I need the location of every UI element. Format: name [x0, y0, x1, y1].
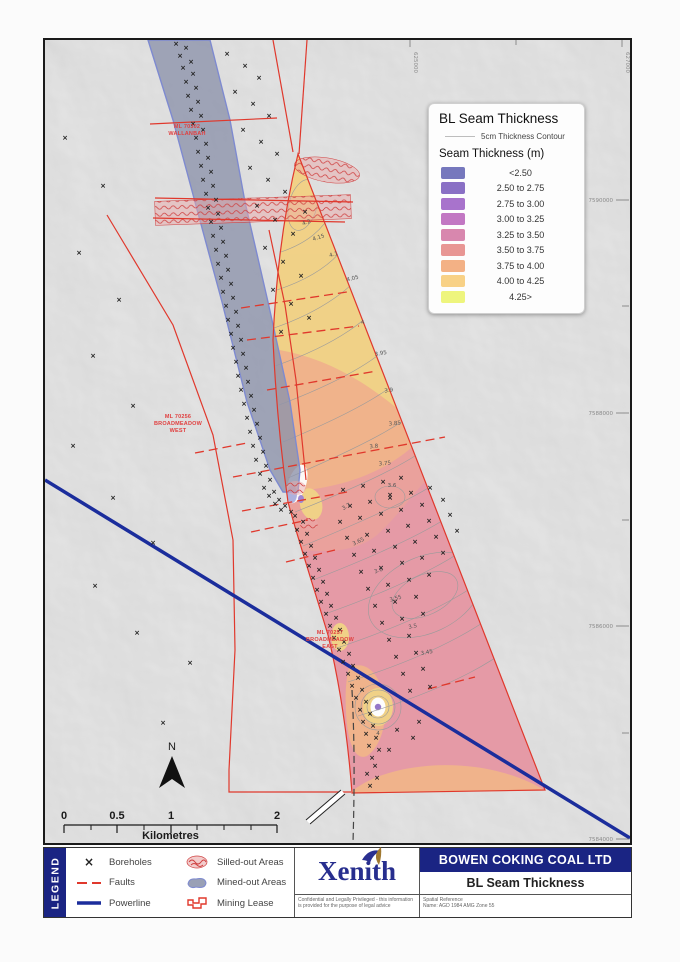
borehole-marker: ×	[193, 84, 199, 92]
borehole-marker: ×	[235, 372, 241, 380]
borehole-marker: ×	[420, 610, 426, 618]
borehole-marker: ×	[230, 344, 236, 352]
borehole-marker: ×	[240, 350, 246, 358]
borehole-marker: ×	[371, 547, 377, 555]
map-frame: ××××××××××××××××××××××××××××××××××××××××…	[43, 38, 632, 845]
borehole-marker: ×	[134, 629, 140, 637]
borehole-marker: ×	[90, 352, 96, 360]
borehole-marker: ×	[294, 526, 300, 534]
faults-icon	[76, 878, 102, 888]
legend-item-label: Mining Lease	[217, 898, 274, 909]
borehole-marker: ×	[302, 550, 308, 558]
borehole-marker: ×	[248, 392, 254, 400]
borehole-marker: ×	[213, 246, 219, 254]
svg-text:×: ×	[84, 855, 94, 869]
borehole-marker: ×	[412, 538, 418, 546]
label-broadmeadow-east: ML 70257 BROADMEADOW EAST	[282, 630, 378, 651]
borehole-marker: ×	[357, 514, 363, 522]
borehole-marker: ×	[223, 252, 229, 260]
xenith-logo-cell: Xenith	[294, 848, 419, 895]
seam-class-swatch	[441, 167, 465, 179]
borehole-marker: ×	[272, 500, 278, 508]
borehole-marker: ×	[364, 770, 370, 778]
legend-item-boreholes: ×Boreholes	[76, 853, 184, 871]
borehole-marker: ×	[387, 491, 393, 499]
borehole-marker: ×	[150, 539, 156, 547]
borehole-marker: ×	[355, 674, 361, 682]
legend-item-label: Powerline	[109, 898, 151, 909]
borehole-marker: ×	[247, 428, 253, 436]
borehole-marker: ×	[385, 581, 391, 589]
seam-class-row: 2.50 to 2.75	[437, 181, 576, 197]
spatial-reference: Spatial Reference Name: AGD 1984 AMG Zon…	[419, 895, 631, 917]
borehole-marker: ×	[392, 543, 398, 551]
borehole-marker: ×	[304, 530, 310, 538]
borehole-marker: ×	[215, 260, 221, 268]
borehole-marker: ×	[258, 138, 264, 146]
northing-label: 7584000	[589, 837, 614, 843]
borehole-marker: ×	[254, 202, 260, 210]
legend-item-label: Boreholes	[109, 857, 152, 868]
borehole-marker: ×	[220, 238, 226, 246]
borehole-marker: ×	[345, 670, 351, 678]
borehole-marker: ×	[372, 762, 378, 770]
borehole-marker: ×	[240, 126, 246, 134]
borehole-marker: ×	[318, 598, 324, 606]
borehole-marker: ×	[265, 176, 271, 184]
borehole-marker: ×	[364, 531, 370, 539]
contour-legend-label: 5cm Thickness Contour	[481, 132, 565, 141]
legend-banner-label: LEGEND	[49, 856, 61, 909]
borehole-marker: ×	[399, 559, 405, 567]
seam-class-swatch	[441, 213, 465, 225]
seam-class-list: <2.502.50 to 2.752.75 to 3.003.00 to 3.2…	[437, 165, 576, 305]
borehole-marker: ×	[379, 619, 385, 627]
borehole-marker: ×	[110, 494, 116, 502]
borehole-marker: ×	[314, 586, 320, 594]
borehole-marker: ×	[386, 636, 392, 644]
borehole-marker: ×	[218, 224, 224, 232]
seam-class-label: 3.00 to 3.25	[465, 214, 576, 224]
borehole-marker: ×	[282, 188, 288, 196]
borehole-marker: ×	[426, 571, 432, 579]
contour-label: 3.6	[388, 483, 397, 489]
borehole-marker: ×	[416, 718, 422, 726]
borehole-marker: ×	[367, 498, 373, 506]
borehole-marker: ×	[250, 442, 256, 450]
borehole-marker: ×	[433, 533, 439, 541]
borehole-marker: ×	[274, 150, 280, 158]
contour-label: 3.8	[369, 444, 379, 451]
borehole-marker: ×	[353, 694, 359, 702]
seam-class-swatch	[441, 182, 465, 194]
legend-items: ×BoreholesFaultsPowerline Silled-out Are…	[66, 848, 294, 917]
borehole-marker: ×	[208, 218, 214, 226]
legend-item-faults: Faults	[76, 874, 184, 892]
xenith-logo: Xenith	[318, 858, 396, 885]
borehole-marker: ×	[238, 336, 244, 344]
seam-class-swatch	[441, 244, 465, 256]
seam-class-row: 3.00 to 3.25	[437, 212, 576, 228]
borehole-marker: ×	[378, 510, 384, 518]
borehole-marker: ×	[340, 486, 346, 494]
seam-class-row: 3.25 to 3.50	[437, 227, 576, 243]
borehole-marker: ×	[92, 582, 98, 590]
borehole-marker: ×	[300, 518, 306, 526]
seam-class-swatch	[441, 260, 465, 272]
borehole-marker: ×	[292, 512, 298, 520]
borehole-marker: ×	[290, 230, 296, 238]
seam-class-row: 4.25>	[437, 289, 576, 305]
borehole-marker: ×	[394, 726, 400, 734]
borehole-marker: ×	[62, 134, 68, 142]
borehole-marker: ×	[70, 442, 76, 450]
borehole-marker: ×	[365, 585, 371, 593]
borehole-marker: ×	[400, 670, 406, 678]
borehole-marker: ×	[233, 358, 239, 366]
borehole-marker: ×	[245, 378, 251, 386]
northing-label: 7588000	[589, 411, 614, 417]
seam-class-label: 3.50 to 3.75	[465, 245, 576, 255]
borehole-marker: ×	[405, 522, 411, 530]
borehole-marker: ×	[366, 742, 372, 750]
scale-tick-label: 0	[61, 810, 67, 822]
borehole-marker: ×	[195, 98, 201, 106]
borehole-marker: ×	[260, 448, 266, 456]
borehole-marker: ×	[177, 52, 183, 60]
borehole-marker: ×	[298, 538, 304, 546]
borehole-marker: ×	[306, 314, 312, 322]
borehole-marker: ×	[308, 542, 314, 550]
borehole-marker: ×	[251, 406, 257, 414]
borehole-marker: ×	[385, 527, 391, 535]
borehole-marker: ×	[210, 232, 216, 240]
xenith-swirl-icon	[360, 846, 384, 868]
easting-label: 627000	[624, 52, 630, 73]
borehole-marker: ×	[376, 746, 382, 754]
borehole-marker: ×	[250, 100, 256, 108]
scale-tick-label: 1	[168, 810, 174, 822]
borehole-marker: ×	[223, 302, 229, 310]
borehole-marker: ×	[238, 386, 244, 394]
borehole-marker: ×	[225, 316, 231, 324]
borehole-marker: ×	[350, 662, 356, 670]
borehole-marker: ×	[280, 258, 286, 266]
borehole-marker: ×	[228, 280, 234, 288]
borehole-marker: ×	[349, 682, 355, 690]
borehole-marker: ×	[367, 710, 373, 718]
borehole-marker: ×	[262, 244, 268, 252]
borehole-marker: ×	[213, 196, 219, 204]
borehole-marker: ×	[242, 62, 248, 70]
legend-item-label: Mined-out Areas	[217, 877, 286, 888]
borehole-marker: ×	[399, 615, 405, 623]
borehole-marker: ×	[218, 274, 224, 282]
borehole-marker: ×	[306, 562, 312, 570]
borehole-marker: ×	[198, 112, 204, 120]
borehole-marker: ×	[208, 168, 214, 176]
legend-item-label: Faults	[109, 877, 135, 888]
seam-class-swatch	[441, 275, 465, 287]
borehole-marker: ×	[393, 653, 399, 661]
borehole-marker: ×	[183, 44, 189, 52]
borehole-marker: ×	[413, 593, 419, 601]
borehole-marker: ×	[406, 632, 412, 640]
borehole-marker: ×	[386, 746, 392, 754]
borehole-marker: ×	[278, 328, 284, 336]
scale-unit-label: Kilometres	[142, 830, 199, 842]
legend-box-title: BL Seam Thickness	[439, 111, 576, 126]
borehole-marker: ×	[210, 182, 216, 190]
seam-class-row: 3.75 to 4.00	[437, 258, 576, 274]
borehole-marker: ×	[271, 488, 277, 496]
mining-lease-icon	[185, 895, 209, 911]
borehole-marker: ×	[358, 568, 364, 576]
borehole-marker: ×	[363, 698, 369, 706]
borehole-marker: ×	[302, 208, 308, 216]
borehole-marker: ×	[419, 501, 425, 509]
borehole-marker: ×	[398, 474, 404, 482]
legend-item-mined-out-areas: Mined-out Areas	[184, 874, 292, 892]
seam-class-label: 4.00 to 4.25	[465, 276, 576, 286]
borehole-marker: ×	[266, 112, 272, 120]
northing-label: 7590000	[589, 198, 614, 204]
borehole-marker: ×	[370, 722, 376, 730]
borehole-marker: ×	[188, 58, 194, 66]
map-title-cell: BL Seam Thickness	[419, 872, 631, 895]
borehole-marker: ×	[247, 164, 253, 172]
north-label: N	[168, 741, 176, 753]
contour-label: 3.9	[384, 387, 394, 394]
borehole-marker: ×	[267, 476, 273, 484]
borehole-marker: ×	[413, 649, 419, 657]
borehole-marker: ×	[254, 420, 260, 428]
borehole-marker: ×	[76, 249, 82, 257]
borehole-marker: ×	[205, 204, 211, 212]
borehole-marker: ×	[232, 88, 238, 96]
borehole-marker: ×	[323, 610, 329, 618]
borehole-marker: ×	[190, 70, 196, 78]
mined-out-areas-icon	[185, 875, 209, 891]
borehole-marker: ×	[180, 64, 186, 72]
borehole-marker: ×	[173, 40, 179, 48]
legend-item-label: Silled-out Areas	[217, 857, 284, 868]
borehole-marker: ×	[333, 614, 339, 622]
borehole-marker: ×	[363, 730, 369, 738]
seam-class-row: 4.00 to 4.25	[437, 274, 576, 290]
borehole-marker: ×	[407, 687, 413, 695]
xenith-logo-text: Xenith	[318, 856, 396, 886]
borehole-marker: ×	[198, 162, 204, 170]
scale-tick-label: 0.5	[109, 810, 124, 822]
seam-thickness-heading: Seam Thickness (m)	[439, 148, 576, 160]
borehole-marker: ×	[316, 566, 322, 574]
scale-tick-label: 2	[274, 810, 280, 822]
borehole-marker: ×	[256, 74, 262, 82]
borehole-marker: ×	[257, 470, 263, 478]
borehole-marker: ×	[324, 590, 330, 598]
spatial-reference-name: Name: AGD 1984 AMG Zone 55	[423, 903, 628, 909]
borehole-marker: ×	[328, 602, 334, 610]
label-wallanbah: ML 70302 WALLANBAH	[139, 124, 235, 138]
borehole-marker: ×	[235, 322, 241, 330]
borehole-marker: ×	[346, 650, 352, 658]
seam-class-row: 3.50 to 3.75	[437, 243, 576, 259]
seam-class-label: 2.50 to 2.75	[465, 183, 576, 193]
borehole-marker: ×	[454, 527, 460, 535]
borehole-marker: ×	[360, 718, 366, 726]
legend-item-mining-lease: Mining Lease	[184, 894, 292, 912]
seam-class-swatch	[441, 198, 465, 210]
borehole-marker: ×	[224, 50, 230, 58]
borehole-marker: ×	[205, 154, 211, 162]
seam-class-label: 3.25 to 3.50	[465, 230, 576, 240]
borehole-marker: ×	[426, 517, 432, 525]
legend-item-powerline: Powerline	[76, 894, 184, 912]
borehole-marker: ×	[188, 106, 194, 114]
borehole-marker: ×	[372, 602, 378, 610]
borehole-marker: ×	[298, 272, 304, 280]
silled-out-areas-icon	[185, 854, 209, 870]
borehole-marker: ×	[278, 506, 284, 514]
borehole-marker: ×	[241, 400, 247, 408]
contour-line-sample	[445, 136, 475, 137]
company-banner: BOWEN COKING COAL LTD	[419, 848, 631, 872]
borehole-marker: ×	[160, 719, 166, 727]
borehole-marker: ×	[100, 182, 106, 190]
northing-label: 7586000	[589, 624, 614, 630]
seam-class-swatch	[441, 291, 465, 303]
borehole-marker: ×	[359, 686, 365, 694]
borehole-marker: ×	[220, 288, 226, 296]
borehole-marker: ×	[266, 492, 272, 500]
borehole-marker: ×	[374, 774, 380, 782]
borehole-marker: ×	[310, 574, 316, 582]
borehole-marker: ×	[440, 496, 446, 504]
label-broadmeadow-west: ML 70256 BROADMEADOW WEST	[130, 414, 226, 435]
borehole-marker: ×	[257, 434, 263, 442]
company-name: BOWEN COKING COAL LTD	[439, 853, 612, 867]
borehole-marker: ×	[398, 506, 404, 514]
borehole-marker: ×	[340, 658, 346, 666]
powerline-icon	[76, 898, 102, 908]
borehole-marker: ×	[203, 190, 209, 198]
borehole-marker: ×	[380, 478, 386, 486]
borehole-marker: ×	[225, 266, 231, 274]
borehole-marker: ×	[408, 489, 414, 497]
borehole-marker: ×	[288, 300, 294, 308]
legend-column-2: Silled-out AreasMined-out AreasMining Le…	[184, 853, 292, 912]
seam-class-swatch	[441, 229, 465, 241]
borehole-marker: ×	[369, 754, 375, 762]
borehole-marker: ×	[116, 296, 122, 304]
borehole-marker: ×	[244, 414, 250, 422]
borehole-marker: ×	[357, 706, 363, 714]
borehole-marker: ×	[228, 330, 234, 338]
legend-box: BL Seam Thickness 5cm Thickness Contour …	[428, 103, 585, 314]
borehole-marker: ×	[344, 534, 350, 542]
borehole-marker: ×	[419, 554, 425, 562]
bottom-strip: LEGEND ×BoreholesFaultsPowerline Silled-…	[43, 847, 632, 918]
borehole-marker: ×	[187, 659, 193, 667]
legend-column-1: ×BoreholesFaultsPowerline	[76, 853, 184, 912]
borehole-marker: ×	[427, 683, 433, 691]
seam-class-label: 2.75 to 3.00	[465, 199, 576, 209]
borehole-marker: ×	[327, 622, 333, 630]
borehole-marker: ×	[410, 734, 416, 742]
borehole-marker: ×	[351, 551, 357, 559]
seam-class-row: <2.50	[437, 165, 576, 181]
borehole-marker: ×	[183, 78, 189, 86]
map-sheet: ××××××××××××××××××××××××××××××××××××××××…	[0, 0, 680, 962]
borehole-marker: ×	[261, 484, 267, 492]
seam-class-label: 4.25>	[465, 292, 576, 302]
seam-class-row: 2.75 to 3.00	[437, 196, 576, 212]
borehole-marker: ×	[230, 294, 236, 302]
legend-banner: LEGEND	[44, 848, 66, 917]
borehole-marker: ×	[406, 576, 412, 584]
borehole-marker: ×	[243, 364, 249, 372]
easting-label: 625000	[412, 52, 418, 73]
borehole-marker: ×	[263, 462, 269, 470]
seam-class-label: <2.50	[465, 168, 576, 178]
borehole-marker: ×	[360, 482, 366, 490]
borehole-marker: ×	[447, 511, 453, 519]
borehole-marker: ×	[253, 456, 259, 464]
borehole-marker: ×	[320, 578, 326, 586]
borehole-marker: ×	[200, 176, 206, 184]
legend-item-silled-out-areas: Silled-out Areas	[184, 853, 292, 871]
borehole-marker: ×	[427, 484, 433, 492]
borehole-marker: ×	[312, 554, 318, 562]
contour-label: 4	[376, 731, 380, 737]
borehole-marker: ×	[195, 148, 201, 156]
borehole-marker: ×	[270, 286, 276, 294]
borehole-marker: ×	[367, 782, 373, 790]
borehole-marker: ×	[420, 665, 426, 673]
borehole-marker: ×	[215, 210, 221, 218]
contour-label: 3.75	[379, 460, 392, 467]
borehole-marker: ×	[272, 216, 278, 224]
borehole-marker: ×	[440, 549, 446, 557]
borehole-marker: ×	[130, 402, 136, 410]
borehole-marker: ×	[337, 518, 343, 526]
borehole-marker: ×	[203, 140, 209, 148]
borehole-marker: ×	[185, 92, 191, 100]
boreholes-icon: ×	[78, 855, 100, 869]
seam-class-label: 3.75 to 4.00	[465, 261, 576, 271]
contour-legend-row: 5cm Thickness Contour	[445, 132, 576, 141]
borehole-marker: ×	[233, 308, 239, 316]
confidential-note: Confidential and Legally Privileged - th…	[294, 895, 419, 917]
map-title: BL Seam Thickness	[467, 876, 585, 890]
